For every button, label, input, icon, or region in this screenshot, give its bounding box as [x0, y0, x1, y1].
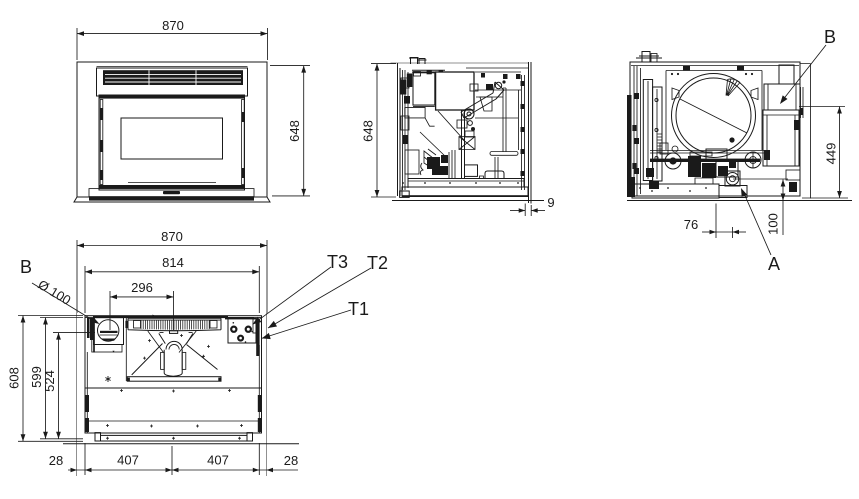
svg-text:608: 608 — [7, 367, 22, 389]
svg-text:524: 524 — [42, 370, 57, 392]
svg-text:407: 407 — [117, 453, 139, 468]
svg-text:B: B — [20, 257, 32, 277]
svg-text:296: 296 — [131, 280, 153, 295]
svg-text:A: A — [768, 254, 780, 274]
svg-text:T2: T2 — [367, 253, 388, 273]
svg-text:9: 9 — [547, 195, 554, 210]
svg-text:449: 449 — [824, 143, 839, 165]
svg-text:814: 814 — [162, 255, 184, 270]
svg-text:B: B — [824, 27, 836, 47]
svg-text:870: 870 — [162, 18, 184, 33]
svg-text:28: 28 — [284, 453, 298, 468]
svg-text:76: 76 — [684, 217, 698, 232]
svg-text:648: 648 — [287, 120, 302, 142]
svg-text:648: 648 — [361, 120, 376, 142]
svg-text:28: 28 — [49, 453, 63, 468]
svg-text:407: 407 — [207, 453, 229, 468]
svg-text:870: 870 — [161, 229, 183, 244]
svg-text:100: 100 — [766, 213, 781, 235]
svg-text:T3: T3 — [327, 252, 348, 272]
svg-text:T1: T1 — [348, 299, 369, 319]
